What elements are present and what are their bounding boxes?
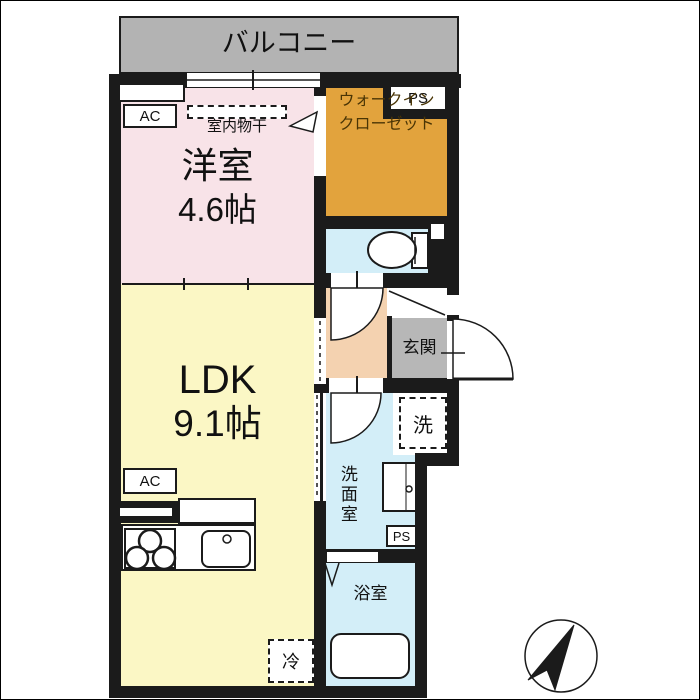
shoe-cabinet-area bbox=[387, 288, 447, 316]
compass-circle bbox=[525, 620, 597, 692]
ac-label-top: AC bbox=[140, 108, 161, 125]
toilet-tank bbox=[411, 232, 429, 269]
closet-label-line1: ウォークイン bbox=[326, 93, 447, 110]
bathtub bbox=[330, 633, 410, 679]
small-window bbox=[118, 83, 185, 102]
hallway-opening bbox=[314, 318, 326, 384]
balcony-window bbox=[186, 72, 321, 88]
washroom-door-opening bbox=[329, 378, 383, 393]
ps-box-bottom: PS bbox=[386, 525, 417, 547]
hallway bbox=[326, 288, 387, 378]
ps-label-bottom: PS bbox=[393, 529, 410, 544]
wall-left bbox=[109, 74, 121, 698]
entrance-side-window bbox=[447, 293, 459, 317]
compass-needle bbox=[528, 625, 574, 690]
washroom-thin-wall bbox=[320, 393, 323, 501]
kitchen-counter-top bbox=[178, 498, 256, 524]
ldk-name: LDK bbox=[121, 359, 314, 401]
wall-bottom bbox=[109, 686, 427, 698]
washer-box: 洗 bbox=[399, 397, 447, 449]
entrance-label: 玄関 bbox=[392, 339, 447, 357]
balcony-label: バルコニー bbox=[119, 29, 459, 57]
fridge-box: 冷 bbox=[268, 639, 314, 683]
washbasin bbox=[382, 462, 417, 512]
toilet-duct-slot bbox=[431, 224, 444, 239]
fridge-label: 冷 bbox=[282, 648, 300, 674]
compass-icon bbox=[525, 620, 597, 692]
indoor-drying-rack bbox=[187, 105, 287, 119]
bath-door-slot bbox=[326, 551, 379, 563]
washroom-label: 洗面室 bbox=[338, 439, 356, 551]
washer-label: 洗 bbox=[413, 409, 433, 438]
ac-box-bottom: AC bbox=[123, 468, 177, 494]
western-room-name: 洋室 bbox=[121, 147, 314, 185]
stove bbox=[124, 528, 176, 569]
kitchen-sink bbox=[201, 530, 251, 568]
western-room-size: 4.6帖 bbox=[121, 193, 314, 228]
ac-label-bottom: AC bbox=[140, 473, 161, 490]
ldk-size: 9.1帖 bbox=[121, 405, 314, 444]
ac-box-top: AC bbox=[123, 104, 177, 128]
entrance-door bbox=[453, 319, 513, 379]
floorplan: バルコニー AC AC PS PS 室内物干 洗 冷 bbox=[0, 0, 700, 700]
bathroom-label: 浴室 bbox=[326, 585, 415, 603]
closet-doorway bbox=[314, 96, 326, 176]
toilet-door-opening bbox=[331, 273, 383, 288]
indoor-drying-label: 室内物干 bbox=[185, 119, 289, 135]
closet-label-line2: クローゼット bbox=[326, 117, 447, 134]
entrance-door-opening bbox=[447, 321, 459, 379]
kitchen-partition-slot bbox=[119, 507, 173, 517]
